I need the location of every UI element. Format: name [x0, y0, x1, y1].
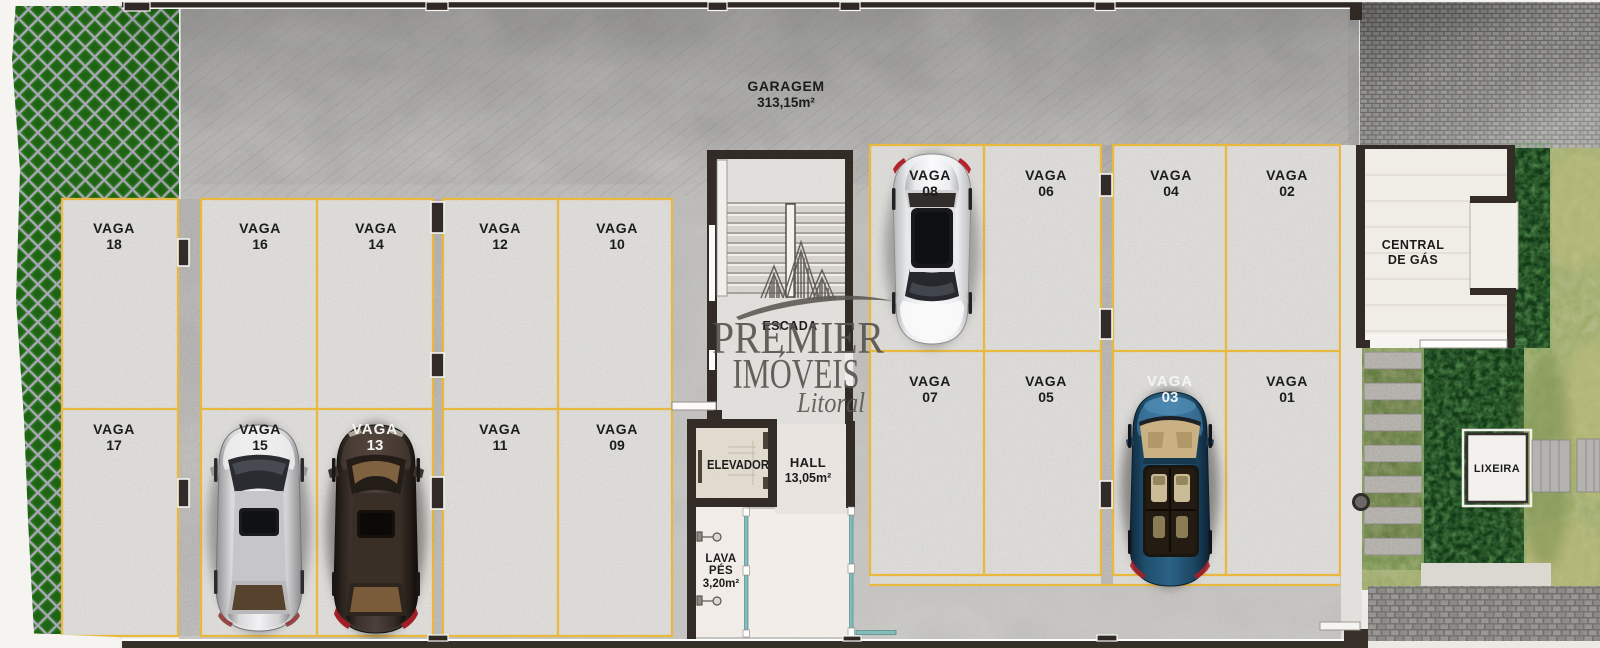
svg-text:VAGA: VAGA	[1025, 167, 1067, 183]
svg-text:VAGA: VAGA	[1266, 167, 1308, 183]
svg-text:02: 02	[1279, 183, 1295, 199]
svg-text:13: 13	[367, 437, 384, 454]
svg-text:01: 01	[1279, 389, 1295, 405]
svg-text:15: 15	[252, 437, 268, 453]
svg-text:PÉS: PÉS	[709, 564, 733, 577]
svg-text:Litoral: Litoral	[796, 387, 865, 419]
svg-text:VAGA: VAGA	[909, 373, 951, 389]
svg-text:VAGA: VAGA	[352, 421, 398, 438]
svg-text:14: 14	[368, 236, 384, 252]
svg-text:03: 03	[1162, 389, 1179, 406]
svg-text:06: 06	[1038, 183, 1054, 199]
svg-text:10: 10	[609, 236, 625, 252]
svg-text:13,05m²: 13,05m²	[785, 471, 832, 485]
svg-text:3,20m²: 3,20m²	[703, 578, 740, 590]
svg-text:VAGA: VAGA	[239, 421, 281, 437]
svg-text:18: 18	[106, 236, 122, 252]
svg-text:VAGA: VAGA	[93, 220, 135, 236]
svg-text:VAGA: VAGA	[596, 220, 638, 236]
svg-text:08: 08	[922, 183, 938, 199]
svg-text:LAVA: LAVA	[705, 553, 736, 565]
svg-text:VAGA: VAGA	[1147, 373, 1193, 390]
svg-text:CENTRAL: CENTRAL	[1382, 238, 1445, 252]
svg-text:ELEVADOR: ELEVADOR	[707, 457, 770, 472]
svg-text:VAGA: VAGA	[1266, 373, 1308, 389]
svg-text:04: 04	[1163, 183, 1179, 199]
svg-text:GARAGEM: GARAGEM	[747, 78, 824, 94]
svg-text:VAGA: VAGA	[909, 167, 951, 183]
svg-text:313,15m²: 313,15m²	[757, 95, 815, 110]
svg-text:17: 17	[106, 437, 122, 453]
svg-text:VAGA: VAGA	[479, 220, 521, 236]
svg-text:11: 11	[493, 437, 508, 453]
svg-text:DE GÁS: DE GÁS	[1388, 252, 1438, 267]
svg-text:VAGA: VAGA	[479, 421, 521, 437]
svg-text:VAGA: VAGA	[355, 220, 397, 236]
svg-text:12: 12	[492, 236, 508, 252]
svg-text:VAGA: VAGA	[239, 220, 281, 236]
svg-text:16: 16	[252, 236, 268, 252]
svg-text:VAGA: VAGA	[596, 421, 638, 437]
svg-text:VAGA: VAGA	[93, 421, 135, 437]
svg-text:HALL: HALL	[790, 455, 826, 470]
svg-text:LIXEIRA: LIXEIRA	[1474, 463, 1520, 475]
svg-text:05: 05	[1038, 389, 1054, 405]
svg-text:07: 07	[922, 389, 938, 405]
svg-text:VAGA: VAGA	[1150, 167, 1192, 183]
svg-text:VAGA: VAGA	[1025, 373, 1067, 389]
svg-text:09: 09	[609, 437, 625, 453]
